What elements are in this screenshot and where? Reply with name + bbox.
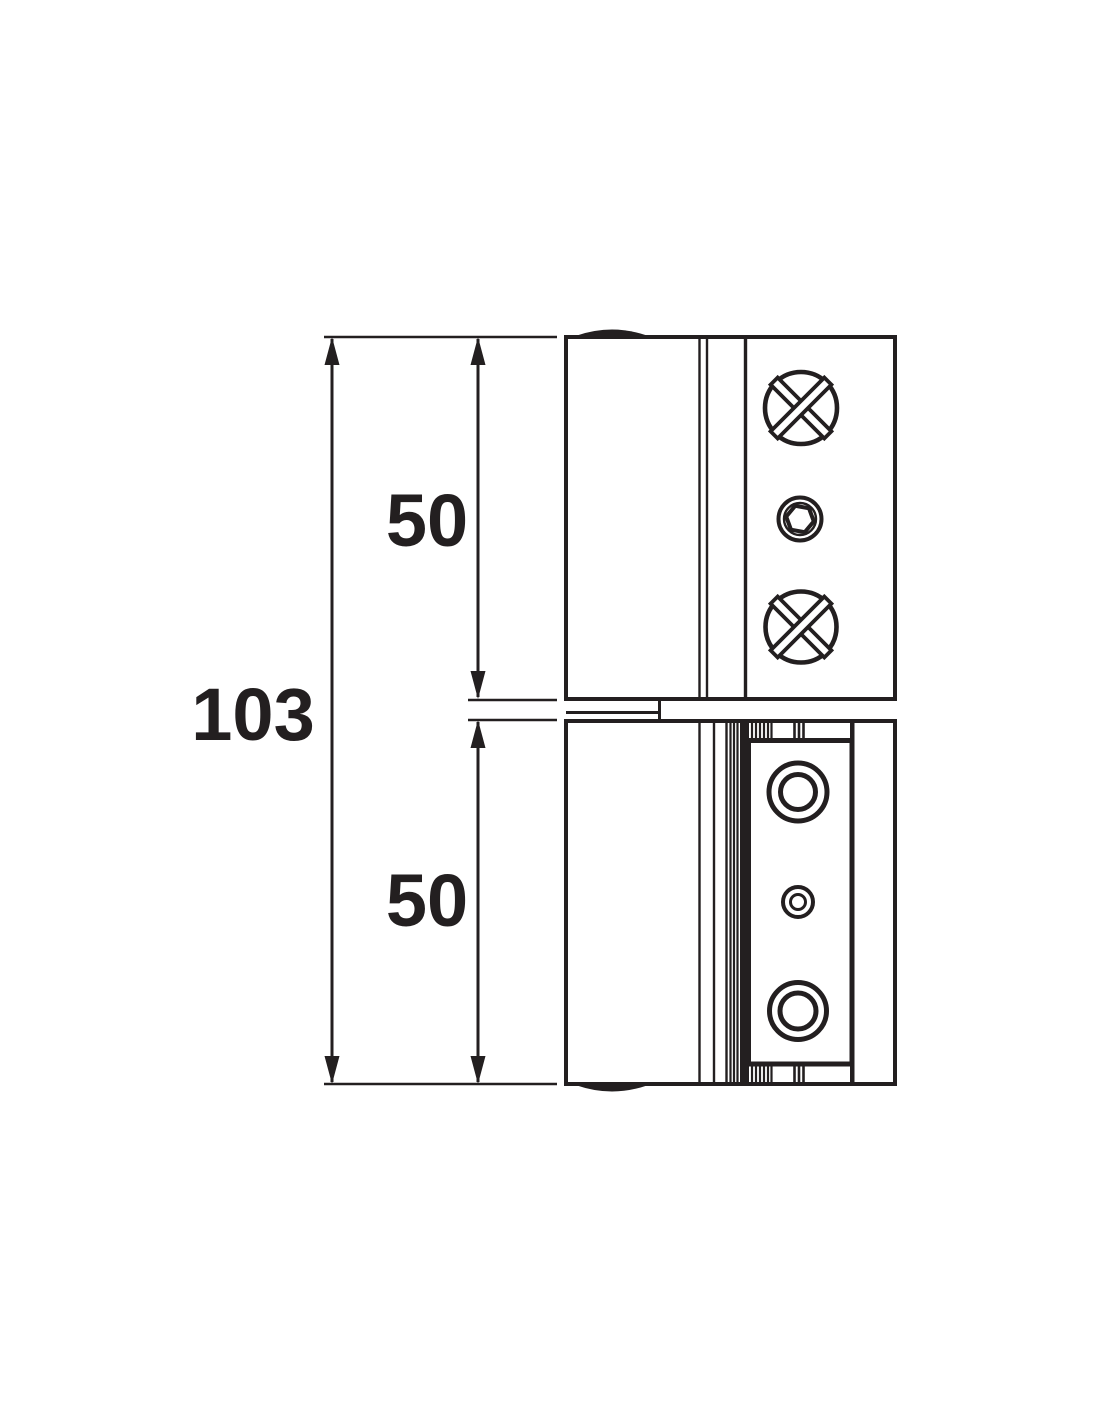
drawing-canvas: 103 50 50 xyxy=(0,0,1100,1422)
dim-103-label: 103 xyxy=(191,673,314,756)
dimension-50-upper: 50 xyxy=(386,337,486,699)
hatch-band-top xyxy=(752,723,804,739)
dim-50-upper-arrow-top xyxy=(471,337,486,365)
clamping-plate-outline xyxy=(749,741,853,1065)
barrel-cap-bottom xyxy=(577,1086,647,1092)
dim-103-arrow-top xyxy=(325,337,340,365)
upper-hinge-leaf xyxy=(566,330,895,700)
upper-leaf-outline xyxy=(566,337,895,699)
phillips-screw-top xyxy=(765,372,837,444)
dimension-annotations: 103 50 50 xyxy=(191,337,557,1084)
dim-103-arrow-bottom xyxy=(325,1056,340,1084)
dim-50-upper-label: 50 xyxy=(386,479,468,562)
clamping-plate xyxy=(749,723,853,1082)
dim-50-lower-arrow-top xyxy=(471,720,486,748)
dim-50-lower-label: 50 xyxy=(386,859,468,942)
hex-socket-hexagon xyxy=(786,506,814,532)
hinge-dimension-drawing: 103 50 50 xyxy=(0,0,1100,1422)
lower-hinge-leaf xyxy=(566,721,895,1092)
dim-50-lower-arrow-bottom xyxy=(471,1056,486,1084)
dimension-50-lower: 50 xyxy=(386,720,486,1084)
barrel-cap-top xyxy=(577,330,647,336)
hex-socket-set-screw xyxy=(779,498,822,541)
phillips-screw-bottom xyxy=(766,592,837,663)
hinge-knuckle-joint xyxy=(566,701,660,720)
dim-50-upper-arrow-bottom xyxy=(471,671,486,699)
dimension-103: 103 xyxy=(191,337,339,1084)
hatch-band-bottom xyxy=(752,1066,804,1082)
